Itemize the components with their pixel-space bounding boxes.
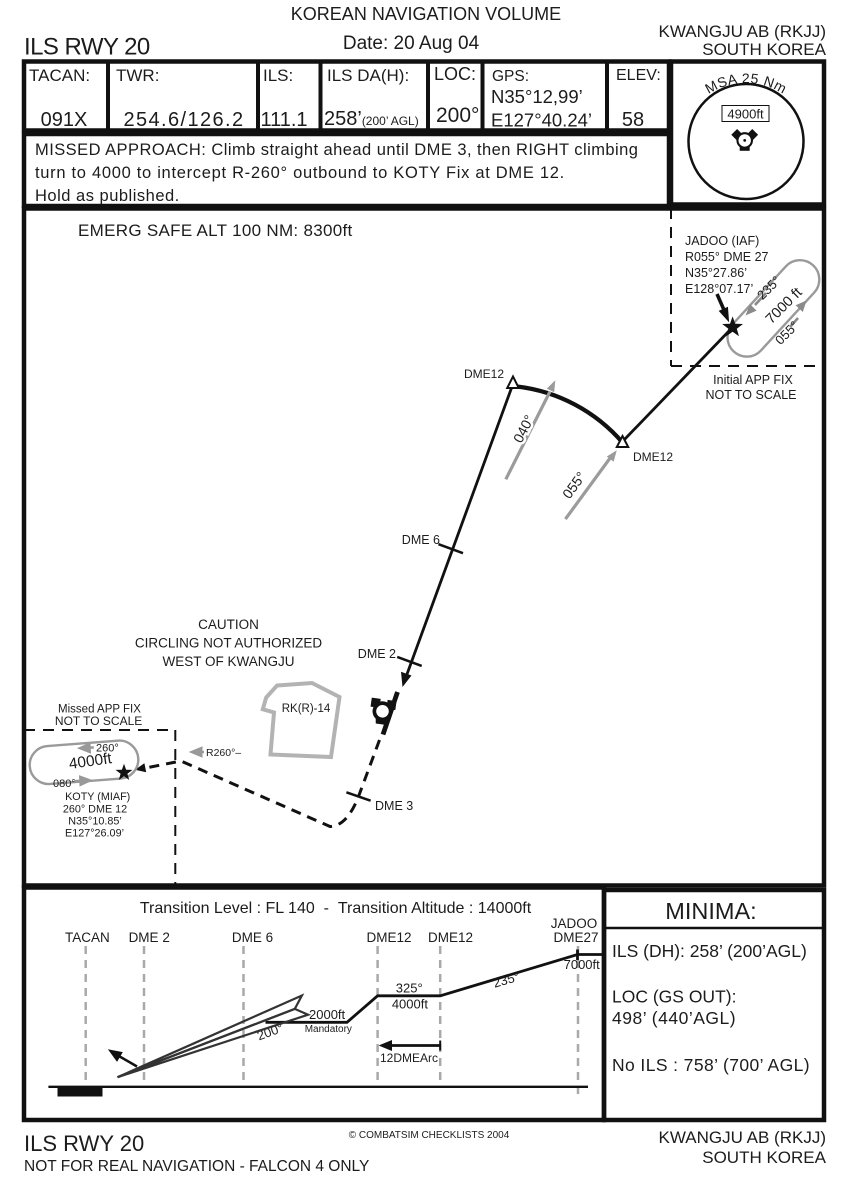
svg-text:080°: 080°	[53, 778, 76, 790]
svg-text:EMERG SAFE ALT 100 NM: 8300ft: EMERG SAFE ALT 100 NM: 8300ft	[78, 221, 353, 240]
svg-text:ILS DA(H):: ILS DA(H):	[327, 66, 409, 85]
svg-text:260° DME 12: 260° DME 12	[63, 804, 127, 816]
svg-text:WEST OF KWANGJU: WEST OF KWANGJU	[162, 654, 294, 669]
svg-text:SOUTH KOREA: SOUTH KOREA	[702, 40, 826, 59]
svg-text:NOT TO SCALE: NOT TO SCALE	[705, 388, 796, 402]
svg-text:111.1: 111.1	[260, 109, 307, 131]
svg-text:254.6/126.2: 254.6/126.2	[123, 109, 244, 131]
svg-text:© COMBATSIM CHECKLISTS 2004: © COMBATSIM CHECKLISTS 2004	[349, 1130, 510, 1141]
svg-text:Mandatory: Mandatory	[305, 1024, 352, 1035]
svg-text:R260°–: R260°–	[206, 747, 241, 759]
svg-text:ILS (DH): 258’ (200’AGL): ILS (DH): 258’ (200’AGL)	[612, 941, 807, 961]
svg-text:ILS RWY 20: ILS RWY 20	[24, 1131, 144, 1156]
svg-text:MISSED APPROACH: Climb straigh: MISSED APPROACH: Climb straight ahead un…	[35, 141, 638, 159]
svg-text:4000ft: 4000ft	[392, 997, 429, 1012]
svg-text:TACAN:: TACAN:	[29, 66, 90, 85]
svg-text:DME27: DME27	[553, 930, 598, 945]
svg-text:No ILS : 758’ (700’ AGL): No ILS : 758’ (700’ AGL)	[612, 1055, 810, 1075]
svg-text:E128°07.17’: E128°07.17’	[685, 282, 753, 296]
svg-text:JADOO (IAF): JADOO (IAF)	[685, 234, 759, 248]
svg-text:turn to 4000 to intercept R-26: turn to 4000 to intercept R-260° outboun…	[35, 164, 565, 182]
svg-text:R055° DME 27: R055° DME 27	[685, 250, 769, 264]
svg-text:Date: 20 Aug 04: Date: 20 Aug 04	[343, 33, 480, 54]
svg-text:KWANGJU AB (RKJJ): KWANGJU AB (RKJJ)	[659, 22, 827, 41]
svg-text:DME 2: DME 2	[358, 647, 396, 661]
svg-text:LOC (GS OUT):: LOC (GS OUT):	[612, 987, 736, 1007]
svg-text:TWR:: TWR:	[116, 66, 159, 85]
svg-text:200°: 200°	[436, 104, 479, 127]
svg-text:KWANGJU AB (RKJJ): KWANGJU AB (RKJJ)	[659, 1128, 827, 1147]
svg-text:Transition Level : FL 140 -: Transition Level : FL 140 - Transition A…	[140, 900, 532, 917]
svg-text:KOREAN NAVIGATION VOLUME: KOREAN NAVIGATION VOLUME	[291, 4, 561, 24]
svg-text:CAUTION: CAUTION	[198, 617, 259, 632]
svg-text:SOUTH KOREA: SOUTH KOREA	[702, 1148, 826, 1167]
svg-text:DME12: DME12	[366, 930, 411, 945]
svg-text:NOT FOR REAL NAVIGATION - FALC: NOT FOR REAL NAVIGATION - FALCON 4 ONLY	[24, 1158, 369, 1175]
svg-text:NOT TO SCALE: NOT TO SCALE	[55, 714, 142, 728]
svg-text:N35°12,99’: N35°12,99’	[491, 86, 583, 107]
svg-text:DME12: DME12	[428, 930, 473, 945]
svg-text:091X: 091X	[41, 109, 88, 131]
svg-text:12DMEArc: 12DMEArc	[380, 1051, 438, 1065]
svg-text:GPS:: GPS:	[492, 68, 529, 85]
svg-text:TACAN: TACAN	[65, 930, 110, 945]
svg-text:DME12: DME12	[633, 450, 673, 464]
svg-text:Initial APP FIX: Initial APP FIX	[713, 373, 793, 387]
svg-text:KOTY (MIAF): KOTY (MIAF)	[65, 791, 130, 803]
svg-text:4900ft: 4900ft	[727, 107, 764, 122]
svg-text:DME 6: DME 6	[232, 930, 273, 945]
svg-text:ILS RWY 20: ILS RWY 20	[24, 34, 150, 61]
svg-text:ILS:: ILS:	[263, 66, 293, 85]
svg-text:N35°27.86’: N35°27.86’	[685, 266, 747, 280]
svg-text:58: 58	[622, 109, 644, 131]
svg-text:CIRCLING NOT AUTHORIZED: CIRCLING NOT AUTHORIZED	[135, 636, 323, 651]
svg-text:E127°40.24’: E127°40.24’	[491, 110, 592, 131]
svg-text:7000ft: 7000ft	[564, 957, 601, 972]
svg-text:RK(R)-14: RK(R)-14	[282, 703, 331, 715]
svg-text:N35°10.85’: N35°10.85’	[68, 816, 122, 828]
svg-text:MINIMA:: MINIMA:	[665, 898, 756, 924]
svg-text:2000ft: 2000ft	[309, 1007, 346, 1022]
svg-text:DME12: DME12	[464, 367, 504, 381]
svg-text:JADOO: JADOO	[551, 916, 598, 931]
svg-text:DME 3: DME 3	[375, 799, 413, 813]
svg-text:498’ (440’AGL): 498’ (440’AGL)	[612, 1008, 736, 1028]
svg-text:DME 6: DME 6	[402, 533, 440, 547]
svg-text:E127°26.09’: E127°26.09’	[65, 828, 124, 840]
svg-text:Hold as published.: Hold as published.	[35, 187, 180, 205]
svg-text:ELEV:: ELEV:	[616, 67, 661, 84]
svg-text:LOC:: LOC:	[434, 64, 476, 84]
svg-text:325°: 325°	[396, 981, 423, 996]
svg-text:DME 2: DME 2	[129, 930, 170, 945]
